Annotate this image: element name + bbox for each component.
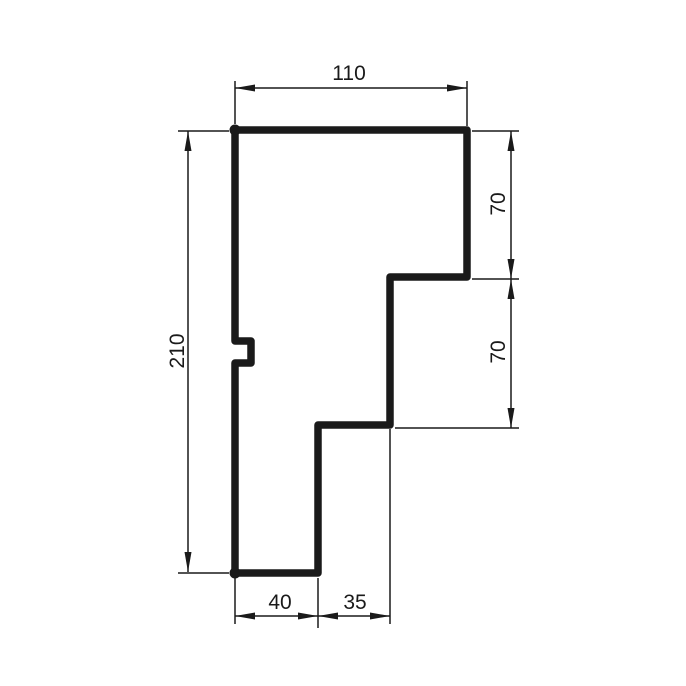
- dimension-arrowhead: [235, 85, 255, 92]
- drawing-canvas: 11021070704035: [0, 0, 686, 686]
- profile-node-dot: [230, 568, 241, 579]
- dimension-label: 35: [343, 591, 366, 614]
- dimension-label: 70: [487, 340, 510, 363]
- profile-section-drawing: 11021070704035: [0, 0, 686, 686]
- profile-outline: [235, 130, 467, 573]
- profile-outline-group: [230, 125, 468, 579]
- dimension-label: 110: [332, 62, 365, 85]
- dimension-arrowhead: [447, 85, 467, 92]
- dimension-arrowhead: [235, 613, 255, 620]
- dimension-arrowhead: [298, 613, 318, 620]
- dimension-lower-step-height: 70: [395, 279, 519, 428]
- dimension-arrowhead: [318, 613, 338, 620]
- dimension-bottom-width-right: 35: [318, 429, 390, 624]
- dimension-arrowhead: [185, 552, 192, 572]
- dimension-label: 70: [487, 192, 510, 215]
- dimension-arrowhead: [508, 279, 515, 299]
- dimension-arrowhead: [370, 613, 390, 620]
- dimension-bottom-width-left: 40: [235, 578, 318, 628]
- dimension-arrowhead: [185, 131, 192, 151]
- dimension-arrowhead: [508, 131, 515, 151]
- profile-node-dot: [230, 125, 241, 136]
- dimension-arrowhead: [508, 259, 515, 279]
- dimension-upper-step-height: 70: [472, 131, 519, 279]
- dimension-arrowhead: [508, 408, 515, 428]
- dimension-label: 40: [268, 591, 291, 614]
- dimension-label: 210: [166, 333, 189, 368]
- dimension-top-width: 110: [235, 62, 467, 126]
- dimension-total-height: 210: [166, 131, 229, 573]
